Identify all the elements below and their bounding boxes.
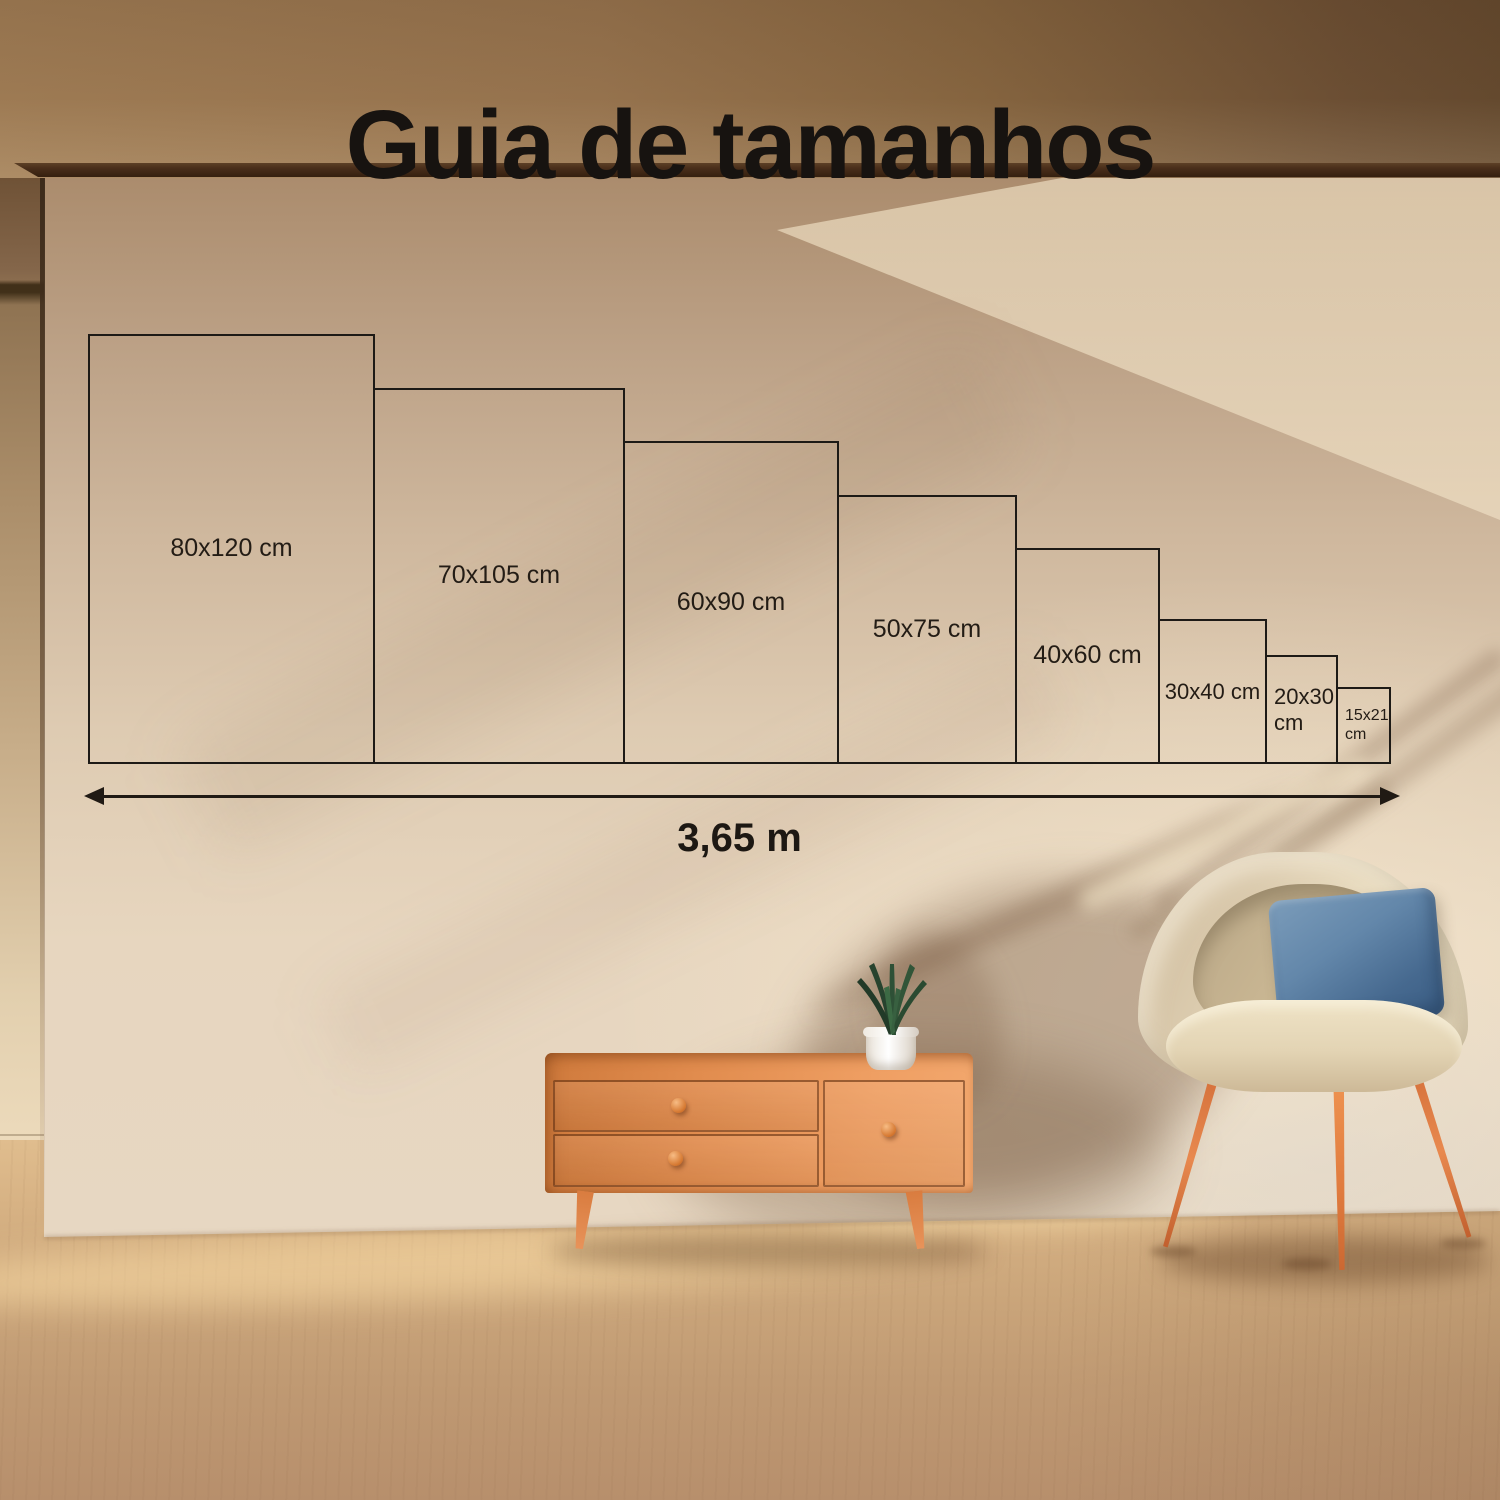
- size-box-50x75: 50x75 cm: [837, 495, 1017, 764]
- chair-leg: [1158, 1070, 1223, 1249]
- size-label: 40x60 cm: [1033, 641, 1141, 671]
- drawer-knob: [881, 1122, 896, 1137]
- left-hallway-strip: [0, 178, 44, 1140]
- chair-leg: [1330, 1074, 1350, 1270]
- size-label: 70x105 cm: [438, 561, 560, 591]
- drawer-knob: [671, 1098, 686, 1113]
- size-box-15x21: 15x21 cm: [1336, 687, 1391, 764]
- plant: [845, 952, 940, 1037]
- sideboard: [545, 1053, 973, 1193]
- size-box-60x90: 60x90 cm: [623, 441, 839, 764]
- drawer-top-left: [553, 1080, 819, 1132]
- total-width-arrow: [89, 795, 1390, 798]
- chair-shell: [1138, 852, 1468, 1090]
- arrow-left-head-icon: [84, 787, 104, 805]
- wall-corner-crack: [40, 178, 45, 1238]
- armchair: [1130, 850, 1480, 1275]
- size-label: 80x120 cm: [170, 534, 292, 564]
- drawer-bottom-left: [553, 1134, 819, 1187]
- total-width-label: 3,65 m: [89, 816, 1390, 861]
- left-hallway-floor-seam: [0, 1134, 44, 1136]
- arrow-right-head-icon: [1380, 787, 1400, 805]
- size-box-20x30: 20x30 cm: [1265, 655, 1338, 764]
- size-box-80x120: 80x120 cm: [88, 334, 375, 764]
- size-label: 60x90 cm: [677, 588, 785, 618]
- size-guide-scene: Guia de tamanhos: [0, 0, 1500, 1500]
- size-box-30x40: 30x40 cm: [1158, 619, 1267, 764]
- page-title: Guia de tamanhos: [0, 89, 1500, 201]
- size-label: 30x40 cm: [1165, 679, 1260, 705]
- chair-leg: [1406, 1064, 1476, 1240]
- size-label: 20x30 cm: [1274, 684, 1336, 736]
- chair-seat-front: [1166, 1000, 1462, 1092]
- size-label: 50x75 cm: [873, 615, 981, 645]
- size-label: 15x21 cm: [1345, 707, 1389, 745]
- size-box-40x60: 40x60 cm: [1015, 548, 1160, 764]
- size-box-70x105: 70x105 cm: [373, 388, 625, 764]
- drawer-knob: [668, 1151, 683, 1166]
